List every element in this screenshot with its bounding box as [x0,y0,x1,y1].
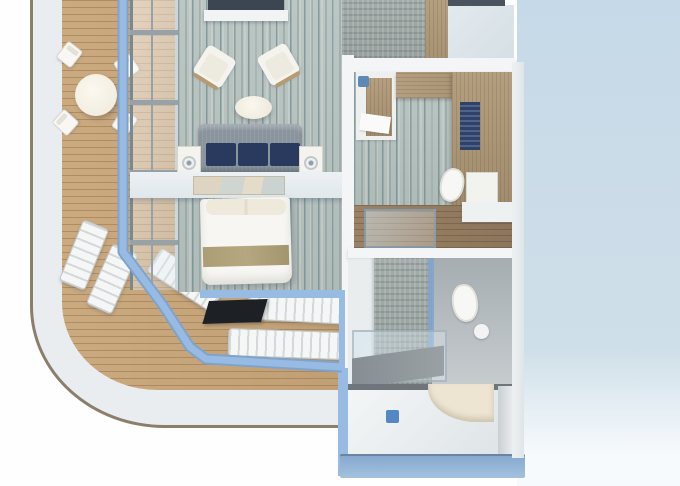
suite-floorplan-render [0,0,680,486]
balustrade-frame [0,0,680,486]
